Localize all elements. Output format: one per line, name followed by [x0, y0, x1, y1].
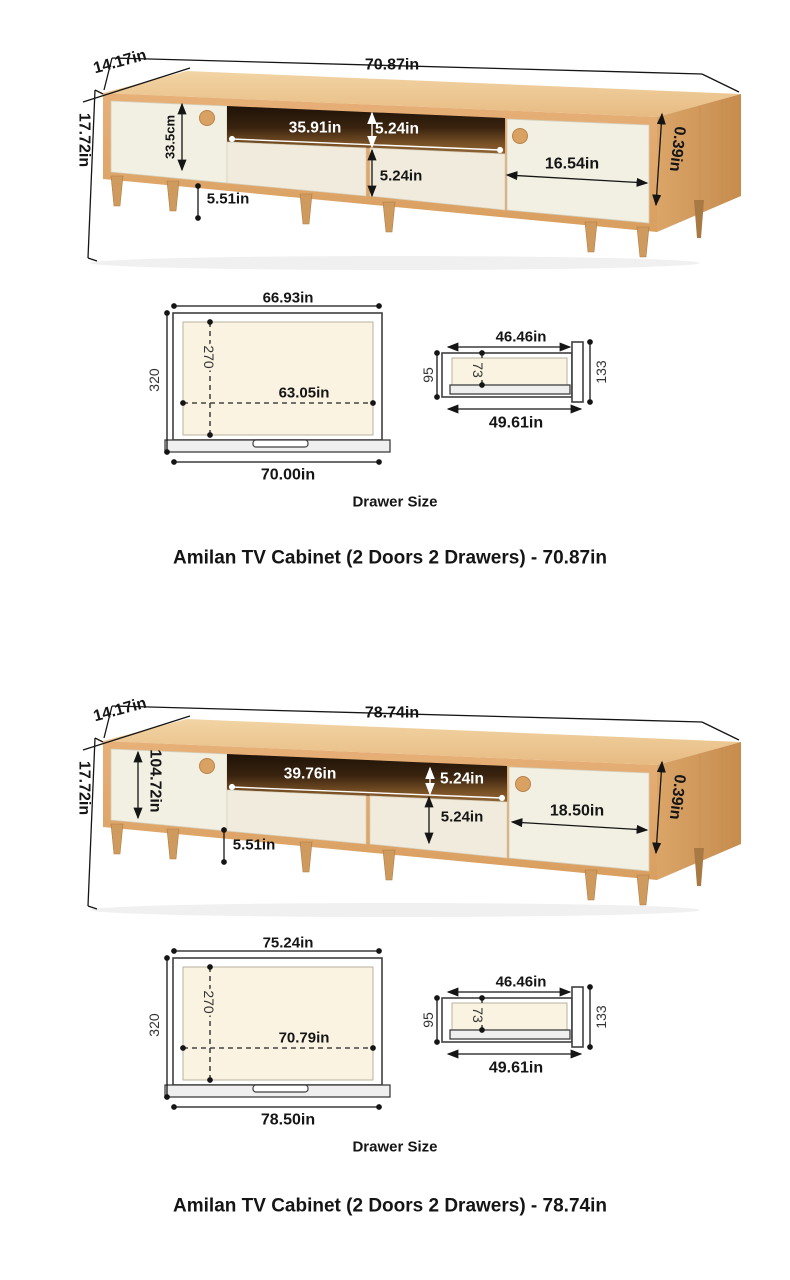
- drawer-side-diagram-2: 46.46in 95 73 133 49.61in: [420, 974, 609, 1077]
- drawer-handle: [253, 440, 308, 447]
- product-dimension-page: 70.87in 14.17in 17.72in 33.5cm 35.91in 5…: [0, 0, 790, 1280]
- drawer-size-label-2: Drawer Size: [352, 1139, 437, 1156]
- floor-shadow: [90, 903, 700, 917]
- dim-opening-height: 5.24in: [375, 121, 419, 138]
- drawer-size-label-1: Drawer Size: [352, 494, 437, 511]
- dim-drawer-height: 5.24in: [441, 809, 484, 826]
- df-height: 320: [146, 1013, 162, 1037]
- dim-opening-height: 5.24in: [440, 771, 484, 788]
- dim-leg-height: 5.51in: [233, 837, 276, 854]
- dim-opening-width: 35.91in: [289, 120, 342, 137]
- side-front-plate: [572, 342, 583, 402]
- ds-inner-height: 73: [470, 362, 486, 378]
- df-inner-width-2: 63.05in: [279, 385, 330, 402]
- side-inner: [452, 358, 567, 385]
- dim-depth: 14.17in: [92, 695, 149, 725]
- df-inner-width-2: 70.79in: [279, 1030, 330, 1047]
- cabinet-illustration-1: 70.87in 14.17in 17.72in 33.5cm 35.91in 5…: [76, 47, 742, 270]
- df-outer-width: 70.00in: [261, 467, 315, 484]
- ds-inner-height: 73: [470, 1007, 486, 1023]
- left-door-knob: [200, 759, 215, 774]
- dimension-diagram-canvas: 70.87in 14.17in 17.72in 33.5cm 35.91in 5…: [0, 0, 790, 1280]
- right-door-knob: [516, 777, 531, 792]
- ds-height: 95: [420, 1012, 436, 1028]
- dim-right-door-width: 18.50in: [550, 803, 604, 820]
- df-inner-height: 270: [201, 990, 217, 1014]
- ds-top-width: 46.46in: [496, 974, 547, 991]
- drawer-handle: [253, 1085, 308, 1092]
- df-inner-width: 66.93in: [263, 290, 314, 307]
- cabinet-illustration-2: 78.74in 14.17in 17.72in 104.72in 39.76in…: [76, 695, 742, 917]
- df-inner-height: 270: [201, 345, 217, 369]
- drawer-front-diagram-1: 66.93in 320 270 63.05in 70.00in: [146, 290, 390, 484]
- ds-top-width: 46.46in: [496, 329, 547, 346]
- dim-depth: 14.17in: [92, 47, 149, 77]
- df-outer-width: 78.50in: [261, 1112, 315, 1129]
- dim-right-door-width: 16.54in: [545, 156, 599, 173]
- drawer-inner: [183, 322, 373, 435]
- dim-drawer-height: 5.24in: [380, 168, 423, 185]
- ds-bottom-width: 49.61in: [489, 1060, 543, 1077]
- drawer-inner: [183, 967, 373, 1080]
- df-inner-width: 75.24in: [263, 935, 314, 952]
- dim-height: 17.72in: [76, 761, 93, 815]
- left-door-knob: [200, 111, 215, 126]
- side-front-plate: [572, 987, 583, 1047]
- dim-leg-height: 5.51in: [207, 191, 250, 208]
- caption-1: Amilan TV Cabinet (2 Doors 2 Drawers) - …: [173, 548, 607, 569]
- ds-bottom-width: 49.61in: [489, 415, 543, 432]
- dim-left-door: 33.5cm: [163, 115, 178, 159]
- dim-opening-width: 39.76in: [284, 766, 337, 783]
- dim-left-door: 104.72in: [147, 749, 164, 812]
- side-rail: [450, 1030, 570, 1039]
- drawer-side-diagram-1: 46.46in 95 73 133 49.61in: [420, 329, 609, 432]
- df-height: 320: [146, 368, 162, 392]
- ds-front-height: 133: [593, 1005, 609, 1029]
- side-rail: [450, 385, 570, 394]
- caption-2: Amilan TV Cabinet (2 Doors 2 Drawers) - …: [173, 1196, 607, 1217]
- drawer-front-diagram-2: 75.24in 320 270 70.79in 78.50in: [146, 935, 390, 1129]
- side-inner: [452, 1003, 567, 1030]
- right-door-knob: [513, 129, 528, 144]
- floor-shadow: [90, 256, 700, 270]
- dim-height: 17.72in: [76, 113, 93, 167]
- ds-height: 95: [420, 367, 436, 383]
- ds-front-height: 133: [593, 360, 609, 384]
